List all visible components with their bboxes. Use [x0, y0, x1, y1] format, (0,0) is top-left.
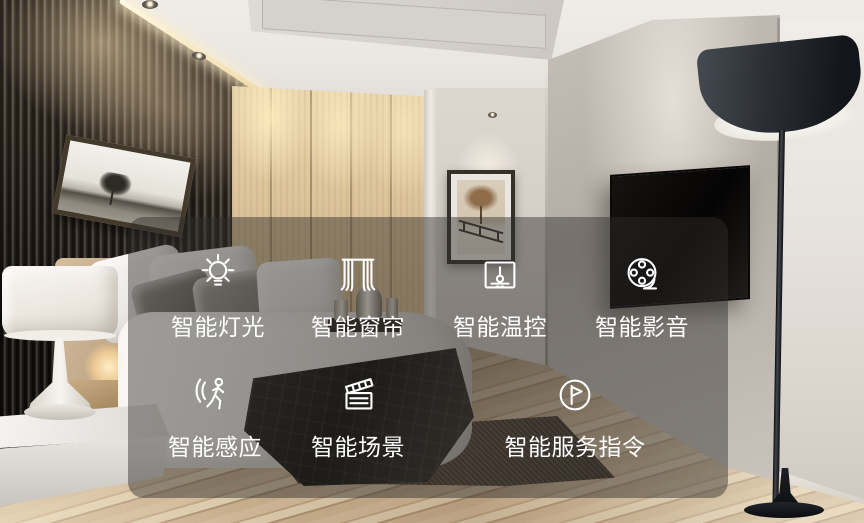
feature-smart-av[interactable]: 智能影音 [552, 252, 732, 341]
smart-home-showcase: 智能灯光 智能窗帘 智能温控 智能影音 [0, 0, 864, 523]
motion-sensor-icon [192, 372, 238, 418]
feature-label: 智能场景 [268, 435, 448, 461]
floor-lamp-base [744, 502, 824, 518]
light-bulb-icon [195, 252, 241, 298]
feature-label: 智能影音 [552, 315, 732, 341]
curtains-icon [335, 252, 381, 298]
flag-in-circle-icon [552, 372, 598, 418]
ceiling-spotlight [488, 112, 497, 118]
ceiling-spotlight [142, 0, 158, 9]
feature-smart-service-commands[interactable]: 智能服务指令 [485, 372, 665, 461]
feature-label: 智能服务指令 [485, 435, 665, 461]
table-lamp-shade [2, 266, 118, 338]
table-lamp-base [24, 404, 96, 420]
feature-smart-scenes[interactable]: 智能场景 [268, 372, 448, 461]
clapperboard-icon [335, 372, 381, 418]
film-reel-icon [619, 252, 665, 298]
thermostat-icon [477, 252, 523, 298]
tree-silhouette [97, 171, 132, 198]
